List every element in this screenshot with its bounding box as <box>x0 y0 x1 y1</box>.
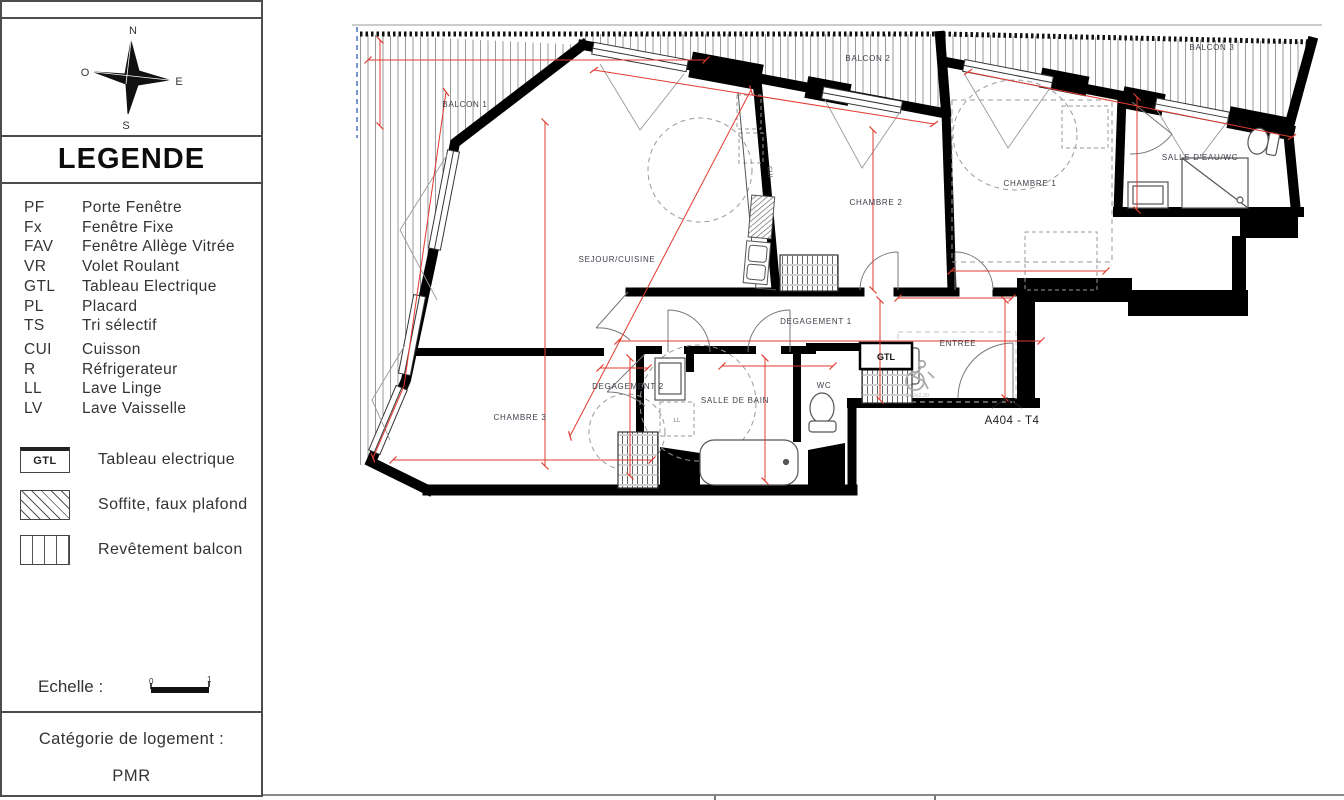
unit-code: A404 - T4 <box>985 415 1040 427</box>
clearance-tag: 1,20x2,20 <box>905 393 929 399</box>
legend-abbr: PL <box>24 297 82 317</box>
legend-abbr: CUI <box>24 340 82 360</box>
legend-item-ts: TSTri sélectif <box>24 316 261 336</box>
legend-label: Volet Roulant <box>82 257 179 277</box>
door-sejour <box>596 292 630 340</box>
room-label-chambre3: CHAMBRE 3 <box>494 413 547 422</box>
soffite-swatch <box>20 490 70 520</box>
symbol-label: Soffite, faux plafond <box>98 496 248 514</box>
room-label-entree: ENTREE <box>940 339 977 348</box>
legend-item-pf: PFPorte Fenêtre <box>24 198 261 218</box>
toilet-wc-icon <box>810 393 834 423</box>
legend-abbr: VR <box>24 257 82 277</box>
room-label-salle-de-bain: SALLE DE BAIN <box>701 396 769 405</box>
legend-label: Cuisson <box>82 340 141 360</box>
compass-north: N <box>129 25 137 37</box>
legend-abbr: FAV <box>24 237 82 257</box>
legend-abbr: LL <box>24 379 82 399</box>
compass-south: S <box>122 120 129 132</box>
legend-abbr: TS <box>24 316 82 336</box>
room-label-chambre2: CHAMBRE 2 <box>850 198 903 207</box>
room-label-wc: WC <box>817 381 832 390</box>
compass-rose: N S E O <box>2 19 261 133</box>
gtl-tag: GTL <box>877 352 895 362</box>
room-label-chambre1: CHAMBRE 1 <box>1004 179 1057 188</box>
legend-item-fav: FAVFenêtre Allège Vitrée <box>24 237 261 257</box>
symbol-balcon: Revêtement balcon <box>20 535 261 565</box>
placard-chambre2 <box>780 255 838 291</box>
legend-item-lv: LVLave Vaisselle <box>24 399 261 419</box>
legend-label: Réfrigerateur <box>82 360 178 380</box>
scale-label: Echelle : <box>38 677 103 697</box>
floor-plan-sheet: BALCON 1 BALCON 2 BALCON 3 SEJOUR/CUISIN… <box>0 0 1344 800</box>
cooktop-icon <box>748 195 775 239</box>
legend-item-ll: LLLave Linge <box>24 379 261 399</box>
symbol-label: Revêtement balcon <box>98 541 243 559</box>
ll-tag: LL <box>674 418 681 424</box>
legend-panel: N S E O LEGENDE PFPorte Fenêtre FxFenêtr… <box>0 0 263 797</box>
gtl-swatch: GTL <box>20 447 70 473</box>
category-value: PMR <box>2 767 261 786</box>
legend-item-fx: FxFenêtre Fixe <box>24 218 261 238</box>
legend-item-vr: VRVolet Roulant <box>24 257 261 277</box>
room-label-balcon1: BALCON 1 <box>442 100 487 109</box>
legend-title-box: LEGENDE <box>0 135 263 182</box>
symbol-label: Tableau electrique <box>98 451 235 469</box>
legend-label: Fenêtre Fixe <box>82 218 174 238</box>
category-box: Catégorie de logement : PMR <box>0 711 263 797</box>
legend-symbols: GTL Tableau electrique Soffite, faux pla… <box>2 419 261 565</box>
legend-abbr: R <box>24 360 82 380</box>
panel-top-box <box>0 0 263 17</box>
compass-box: N S E O <box>0 17 263 135</box>
legend-label: Tableau Electrique <box>82 277 217 297</box>
room-label-balcon3: BALCON 3 <box>1189 43 1234 52</box>
symbol-soffite: Soffite, faux plafond <box>20 490 261 520</box>
legend-label: Tri sélectif <box>82 316 157 336</box>
symbol-gtl: GTL Tableau electrique <box>20 445 261 475</box>
legend-abbr: GTL <box>24 277 82 297</box>
legend-abbr: Fx <box>24 218 82 238</box>
legend-item-r: RRéfrigerateur <box>24 360 261 380</box>
room-label-degagement2: DEGAGEMENT 2 <box>592 382 664 391</box>
door-chambre2 <box>860 252 898 290</box>
room-label-sejour: SEJOUR/CUISINE <box>579 255 656 264</box>
turning-circle-sejour <box>648 118 752 222</box>
legend-body-box: PFPorte Fenêtre FxFenêtre Fixe FAVFenêtr… <box>0 182 263 711</box>
room-label-balcon2: BALCON 2 <box>845 54 890 63</box>
compass-star <box>94 41 169 114</box>
legend-label: Placard <box>82 297 137 317</box>
gtl-swatch-label: GTL <box>33 455 57 467</box>
legend-abbr: LV <box>24 399 82 419</box>
room-label-degagement1: DEGAGEMENT 1 <box>780 317 852 326</box>
legend-label: Lave Linge <box>82 379 162 399</box>
legend-abbr: PF <box>24 198 82 218</box>
legend-title: LEGENDE <box>58 143 205 176</box>
legend-item-pl: PLPlacard <box>24 297 261 317</box>
scale-row: Echelle : 0 1 <box>38 675 221 697</box>
legend-label: Fenêtre Allège Vitrée <box>82 237 235 257</box>
scale-bar: 0 1 <box>141 675 221 697</box>
room-label-salle-eau: SALLE D'EAU/WC <box>1162 153 1238 162</box>
legend-label: Porte Fenêtre <box>82 198 182 218</box>
balcon-swatch <box>20 535 70 565</box>
legend-items: PFPorte Fenêtre FxFenêtre Fixe FAVFenêtr… <box>2 184 261 419</box>
compass-west: O <box>81 67 90 79</box>
cui-tag: CUI <box>766 166 774 178</box>
category-label: Catégorie de logement : <box>2 730 261 749</box>
legend-label: Lave Vaisselle <box>82 399 186 419</box>
compass-east: E <box>175 76 182 88</box>
legend-item-cui: CUICuisson <box>24 340 261 360</box>
legend-item-gtl: GTLTableau Electrique <box>24 277 261 297</box>
turning-circle-chambre1 <box>953 80 1077 190</box>
